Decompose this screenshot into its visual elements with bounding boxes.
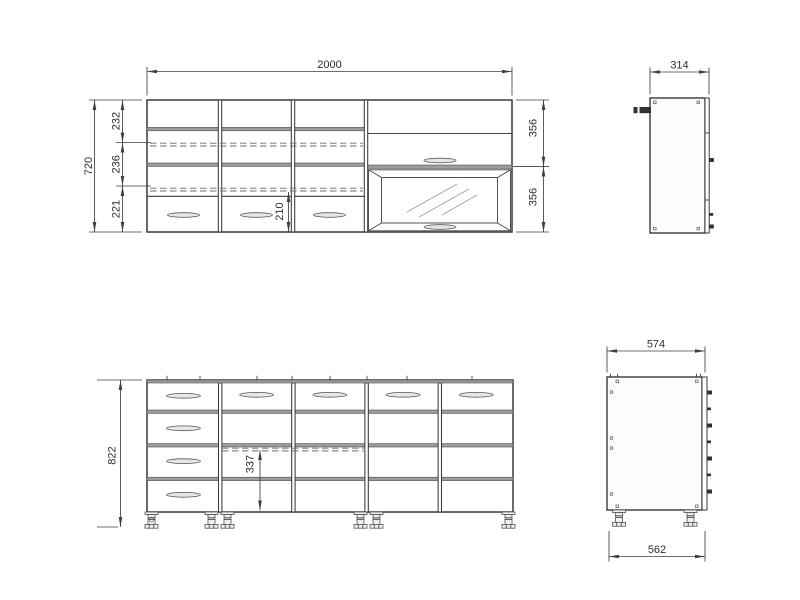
wall-side-panel bbox=[650, 98, 705, 233]
base-side-panel bbox=[607, 377, 702, 510]
dim-label-wall-height: 720 bbox=[83, 157, 95, 175]
dim-label-base-height: 822 bbox=[107, 446, 119, 464]
adjustable-leg bbox=[221, 512, 234, 528]
adjustable-leg bbox=[684, 510, 697, 526]
dim-label-shelf-bottom: 221 bbox=[111, 200, 123, 218]
adjustable-leg bbox=[613, 510, 626, 526]
side-handle bbox=[634, 107, 652, 113]
dim-label-wall-width: 2000 bbox=[317, 59, 341, 71]
drawer-handle bbox=[241, 213, 273, 218]
wall-mount-bracket bbox=[709, 158, 714, 162]
dim-base-depth-bottom: 562 bbox=[609, 531, 705, 562]
drawer-handle bbox=[167, 393, 201, 398]
dim-wall-flap-chain: 356 356 bbox=[513, 100, 549, 232]
dim-label-flap-lower: 356 bbox=[528, 188, 540, 206]
dim-label-drawer-height: 210 bbox=[274, 202, 286, 220]
drawer-slide-ends bbox=[707, 391, 712, 494]
flap-door-handle-upper bbox=[424, 158, 456, 163]
drawer-handle bbox=[167, 459, 201, 464]
dim-base-height: 822 bbox=[97, 380, 142, 527]
partition-1 bbox=[218, 100, 221, 232]
drawer-rail-band-2 bbox=[147, 444, 513, 447]
drawer-rail-band-3 bbox=[147, 477, 513, 480]
drawer-handle bbox=[167, 492, 201, 497]
worktop-edge-band bbox=[147, 380, 513, 383]
flap-divider-band bbox=[366, 165, 512, 168]
base-cabinet-side-view: 574 562 bbox=[607, 339, 712, 562]
dowel-marks bbox=[167, 376, 472, 380]
partition-1 bbox=[219, 383, 222, 512]
wall-cabinet-side-view: 314 bbox=[634, 60, 714, 234]
drawer-handle bbox=[167, 426, 201, 431]
adjustable-leg bbox=[370, 512, 383, 528]
partition-2 bbox=[292, 383, 295, 512]
drawer-handle bbox=[168, 213, 200, 218]
adjustable-leg bbox=[205, 512, 218, 528]
drawer-handle bbox=[459, 392, 493, 397]
dim-label-base-depth-top: 574 bbox=[647, 339, 665, 351]
drawer-rail-band-1 bbox=[147, 410, 513, 413]
fixed-shelf-lower bbox=[147, 163, 366, 166]
wall-mount-bracket bbox=[709, 213, 713, 216]
flap-door-handle-lower bbox=[424, 225, 456, 230]
partition-3 bbox=[365, 383, 368, 512]
drawer-handle bbox=[240, 392, 274, 397]
drawer-handle bbox=[386, 392, 420, 397]
dim-label-flap-upper: 356 bbox=[528, 119, 540, 137]
base-cabinet-front-view: 822 337 bbox=[97, 376, 515, 528]
wall-cabinet-front-view: 2000 720 232 236 221 210 bbox=[83, 59, 549, 232]
adjustable-leg bbox=[354, 512, 367, 528]
partition-4 bbox=[438, 383, 441, 512]
drawer-handle bbox=[313, 392, 347, 397]
base-front-strip bbox=[702, 377, 707, 510]
dim-wall-shelf-chain: 232 236 221 bbox=[111, 100, 152, 232]
partition-2 bbox=[291, 100, 294, 232]
adjustable-leg bbox=[145, 512, 158, 528]
dim-label-shelf-top: 232 bbox=[111, 112, 123, 130]
dim-base-depth-top: 574 bbox=[607, 339, 705, 373]
wall-back-strip bbox=[705, 98, 709, 233]
technical-drawing-sheet: 2000 720 232 236 221 210 bbox=[0, 0, 800, 600]
drawer-handle bbox=[314, 213, 346, 218]
dim-label-base-inner: 337 bbox=[245, 455, 257, 473]
dim-label-shelf-middle: 236 bbox=[111, 155, 123, 173]
dim-wall-width: 2000 bbox=[147, 59, 512, 96]
dim-label-wall-depth: 314 bbox=[670, 60, 688, 72]
fixed-shelf-upper bbox=[147, 127, 366, 130]
wall-mount-bracket bbox=[709, 225, 714, 229]
adjustable-leg bbox=[502, 512, 515, 528]
dim-wall-depth: 314 bbox=[650, 60, 709, 95]
drawing-canvas: 2000 720 232 236 221 210 bbox=[0, 0, 800, 600]
partition-3 bbox=[364, 100, 367, 232]
dim-label-base-depth-bottom: 562 bbox=[648, 544, 666, 556]
